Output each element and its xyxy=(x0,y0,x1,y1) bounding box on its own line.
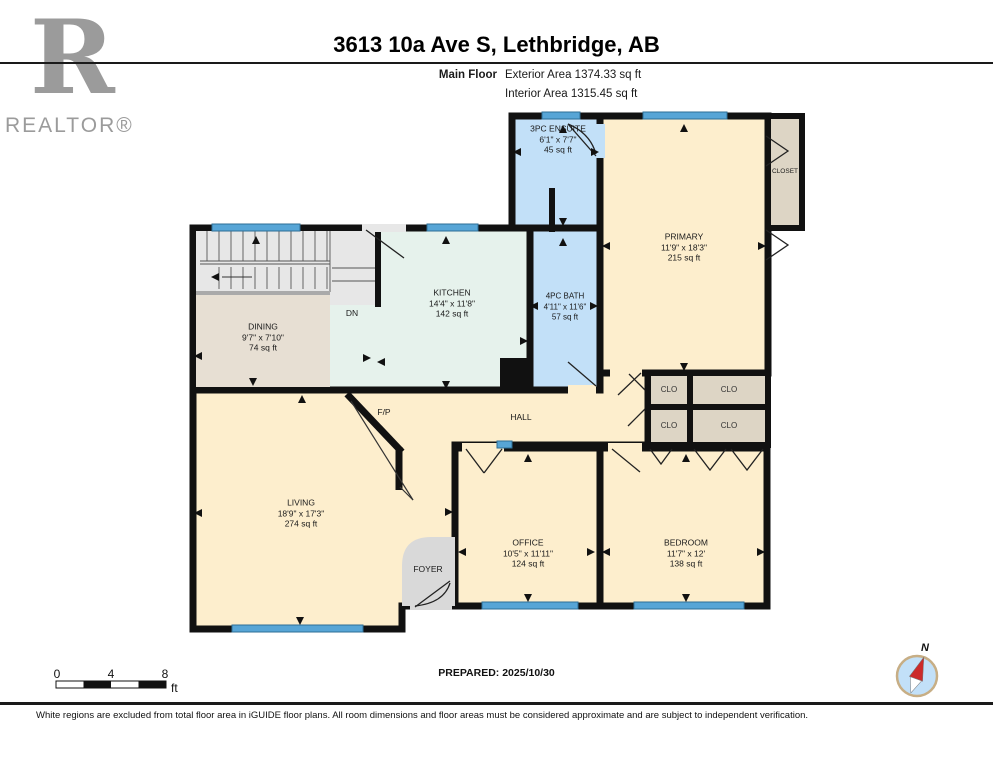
label-clo-4: CLO xyxy=(721,421,737,432)
label-living: LIVING18'9" x 17'3"274 sq ft xyxy=(278,497,325,529)
label-clo-2: CLO xyxy=(721,385,737,396)
prepared-date: PREPARED: 2025/10/30 xyxy=(0,667,993,679)
label-ensuite: 3PC ENSUITE6'1" x 7'7"45 sq ft xyxy=(530,123,586,155)
window xyxy=(497,441,512,448)
window xyxy=(542,112,580,119)
window xyxy=(482,602,578,609)
footer-rule xyxy=(0,702,993,705)
disclaimer-text: White regions are excluded from total fl… xyxy=(36,710,808,721)
label-clo-3: CLO xyxy=(661,421,677,432)
label-foyer: FOYER xyxy=(413,564,442,575)
label-clo-1: CLO xyxy=(661,385,677,396)
scale-unit: ft xyxy=(171,681,178,695)
window xyxy=(232,625,363,632)
window xyxy=(427,224,478,231)
window xyxy=(212,224,300,231)
label-bedroom: BEDROOM11'7" x 12'138 sq ft xyxy=(664,537,708,569)
floor-plan-svg xyxy=(0,0,993,768)
label-bath: 4PC BATH4'11" x 11'6"57 sq ft xyxy=(544,291,587,323)
label-stairs-down: DN xyxy=(346,308,358,319)
label-hall: HALL xyxy=(510,412,531,423)
label-kitchen: KITCHEN14'4" x 11'8"142 sq ft xyxy=(429,287,475,319)
bedroom-room xyxy=(600,448,767,606)
window xyxy=(634,602,744,609)
office-room xyxy=(455,448,600,606)
scale-bar xyxy=(56,681,166,688)
label-dining: DINING9'7" x 7'10"74 sq ft xyxy=(242,321,284,353)
floor-plan-page: R REALTOR® 3613 10a Ave S, Lethbridge, A… xyxy=(0,0,993,768)
chimney xyxy=(500,358,530,390)
label-primary: PRIMARY11'9" x 18'3"215 sq ft xyxy=(661,231,707,263)
compass-north-label: N xyxy=(921,642,929,654)
stairs-zone xyxy=(196,231,330,293)
label-closet: CLOSET xyxy=(772,167,798,178)
window xyxy=(643,112,727,119)
label-fireplace: F/P xyxy=(377,407,390,418)
label-office: OFFICE10'5" x 11'11"124 sq ft xyxy=(503,537,553,569)
